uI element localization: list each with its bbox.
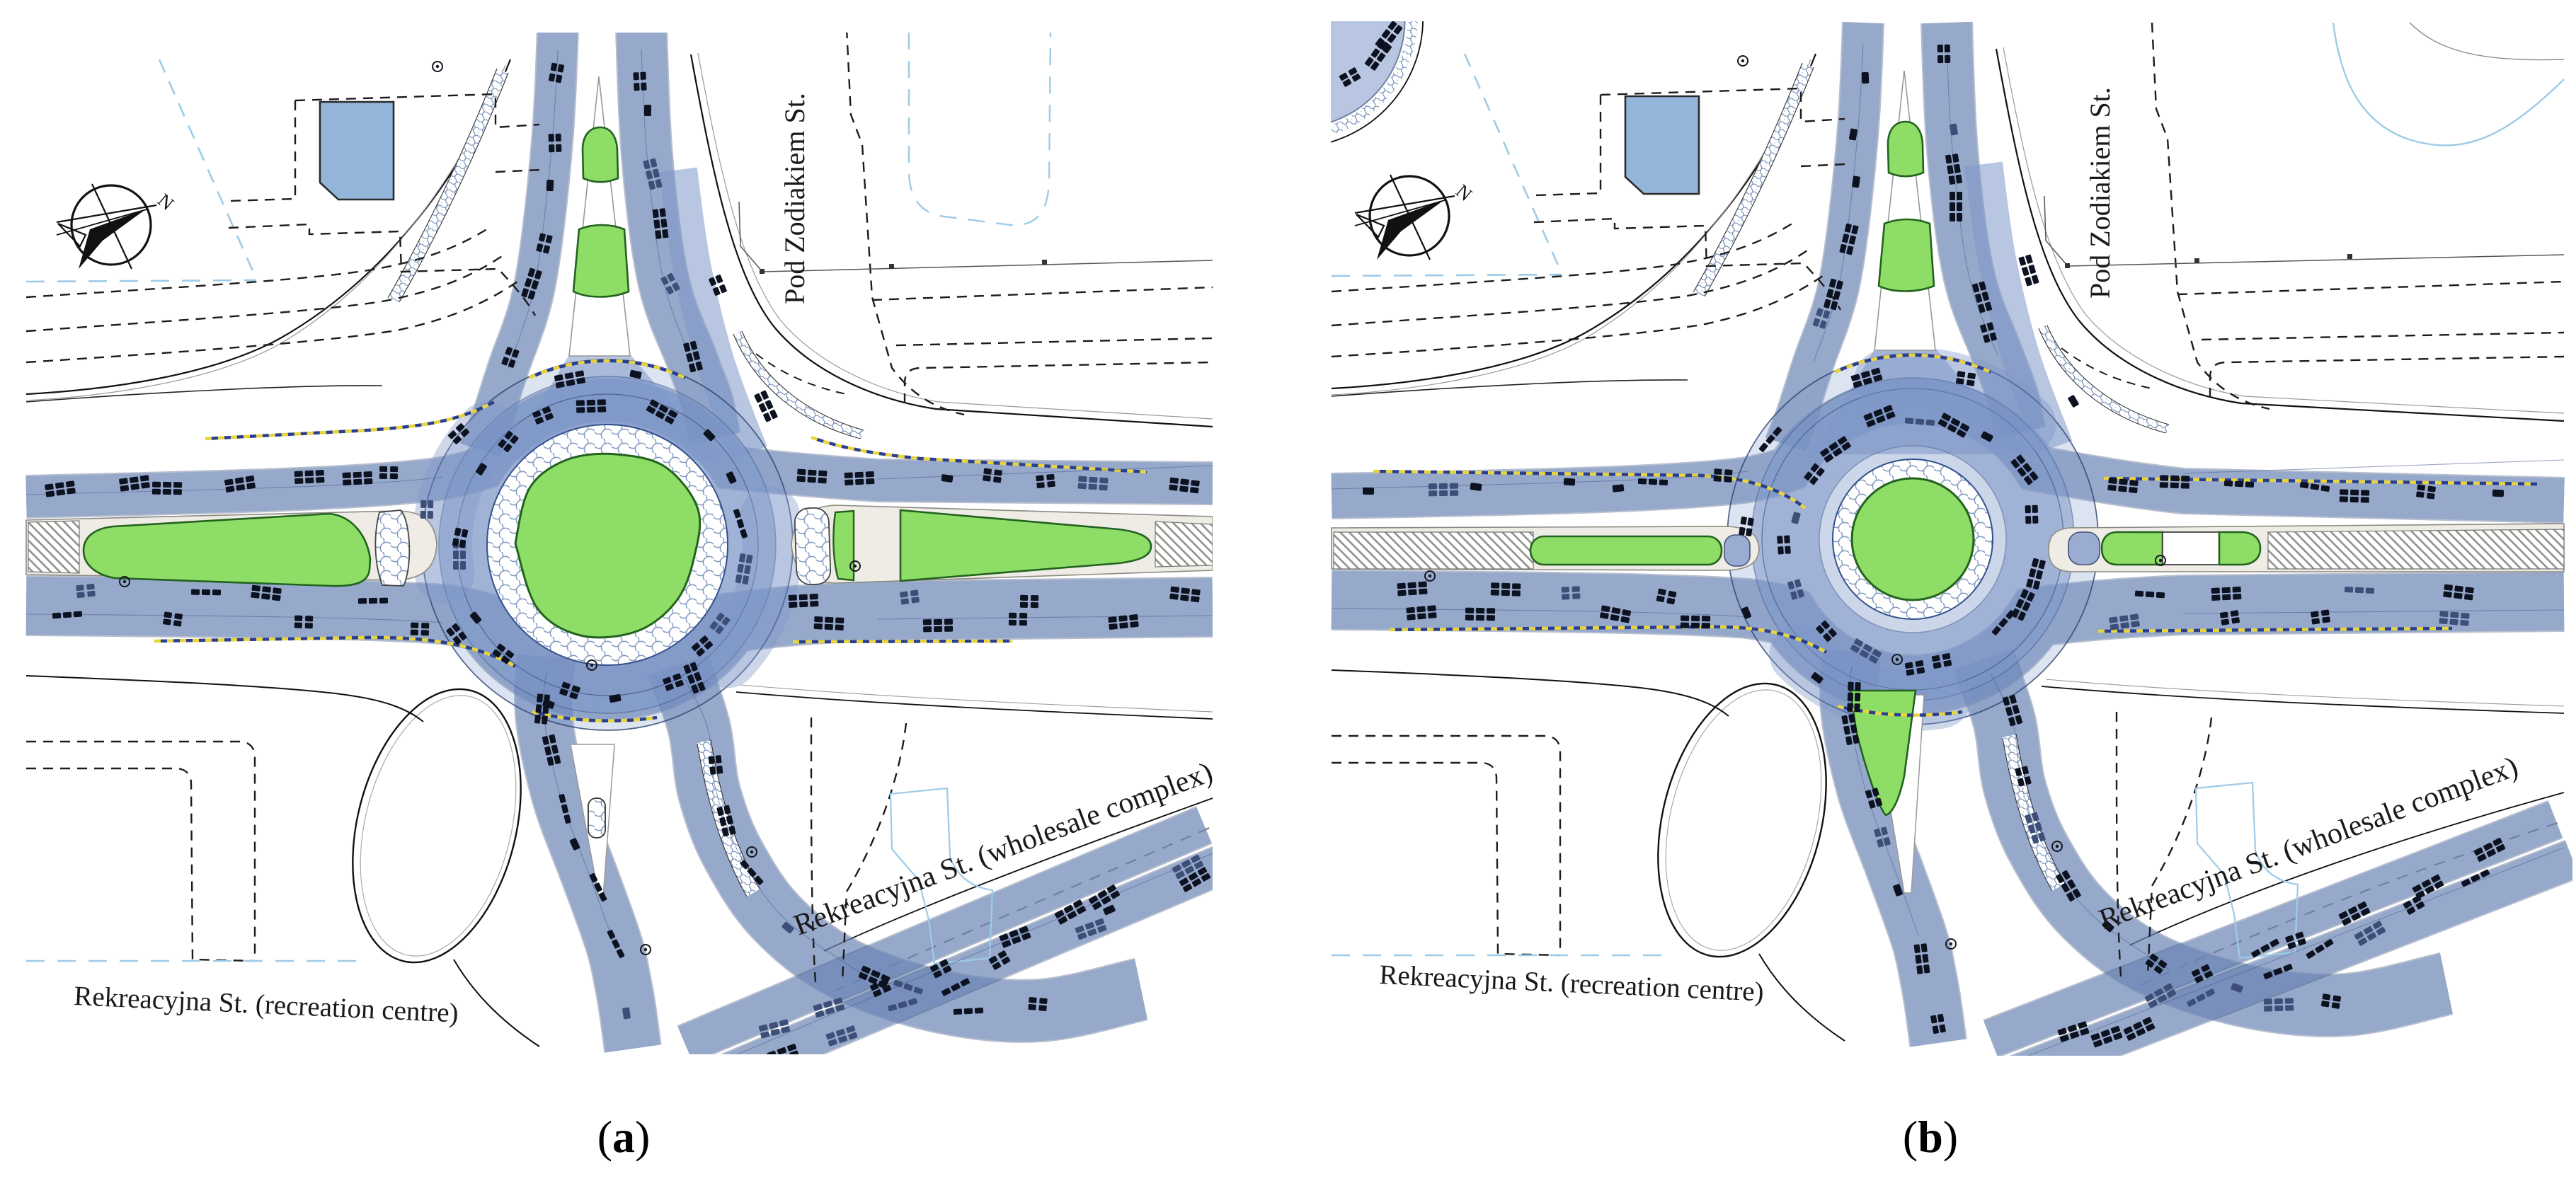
svg-text:Pod Zodiakiem St.: Pod Zodiakiem St.	[2084, 87, 2116, 299]
svg-text:(a): (a)	[597, 1112, 651, 1162]
svg-text:(b): (b)	[1903, 1112, 1958, 1162]
svg-text:Pod Zodiakiem St.: Pod Zodiakiem St.	[779, 93, 811, 304]
